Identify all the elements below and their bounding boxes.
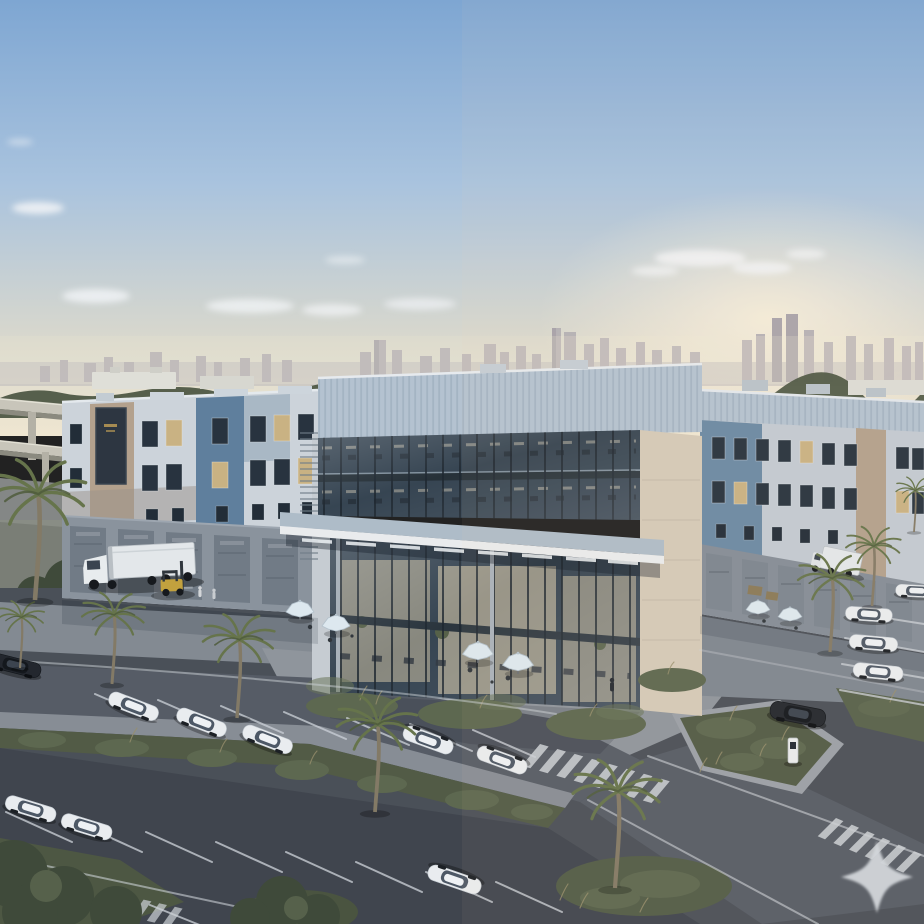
rooftop-unit [96,393,114,401]
sign-logo-glyph [104,424,117,427]
person [212,589,215,599]
facade-sign [96,408,126,484]
architectural-rendering: Aerial golden-hour rendering of a modern… [0,0,924,924]
canopy-column [336,532,340,692]
person [198,586,202,597]
windshield [87,560,100,570]
warm-light-wash [462,0,924,924]
scene-canvas: Aerial golden-hour rendering of a modern… [0,0,924,924]
